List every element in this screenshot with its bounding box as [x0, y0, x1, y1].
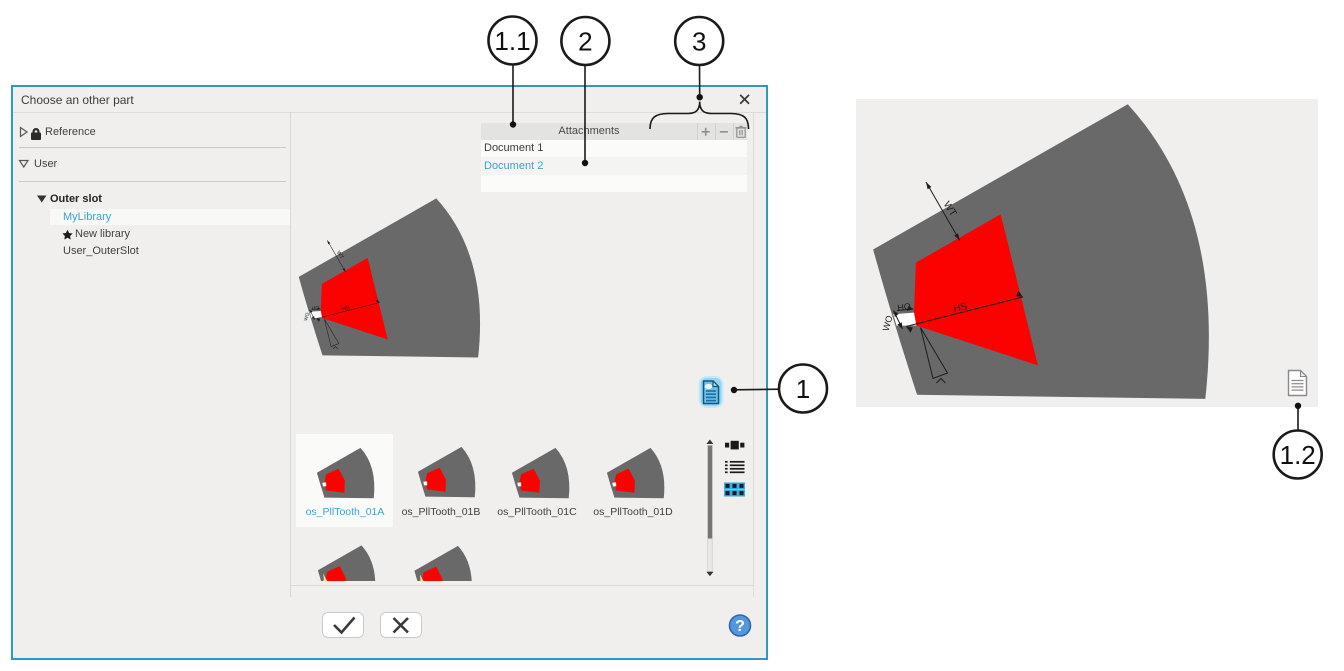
svg-text:1.2: 1.2 — [1280, 440, 1316, 470]
svg-text:3: 3 — [692, 27, 706, 57]
svg-text:1: 1 — [796, 374, 810, 404]
svg-text:1.1: 1.1 — [494, 26, 530, 56]
svg-text:2: 2 — [578, 27, 592, 57]
